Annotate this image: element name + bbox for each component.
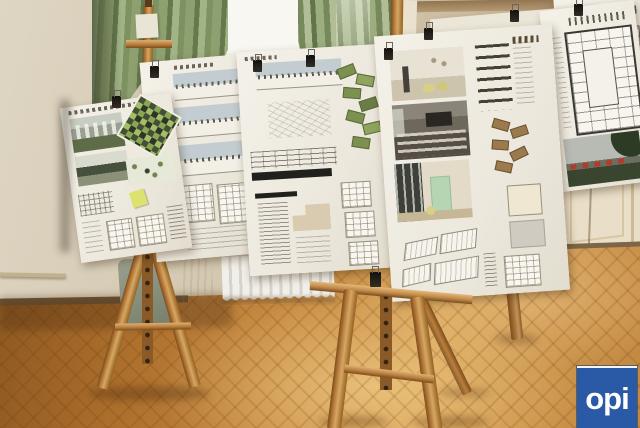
text-block [82,220,105,256]
person-figure [402,66,410,92]
floor-plan [136,213,168,247]
program-block [358,96,378,112]
interior-render-corridor [394,159,473,222]
easel-front-floor-shadow [412,416,488,427]
binder-clip [253,60,262,72]
elevation-drawing [173,68,241,101]
interior-render-playroom [389,46,466,101]
red-accents [570,158,626,170]
easel-left-crossbar-top [126,40,172,48]
floor-plan [106,218,136,251]
floor-plan [507,183,543,216]
easel-left-mast-lower [142,252,153,364]
diagram-block [510,124,529,139]
program-block [355,73,375,87]
binder-clip [112,96,121,108]
window-dots [177,116,241,126]
courtyard-floor-plan [564,24,640,136]
blackboard [425,111,451,127]
easel-label-card [135,13,158,38]
window-dots [258,70,340,79]
floor-plan [344,210,376,238]
volume-box [403,236,438,261]
axonometric-plan [125,153,176,185]
easel-front-mast-top [391,0,404,38]
yellow-pouf [422,83,434,93]
diagram-block [491,118,510,132]
program-block [343,87,362,99]
diagram-block [509,145,529,161]
text-block [483,253,497,288]
binder-clip [306,55,315,67]
legend-text [513,42,535,107]
opi-logo-text: opi [585,383,629,414]
exhibition-room-photo: opi [0,0,640,428]
schedule-table [250,147,337,170]
volume-box [439,228,477,254]
presentation-board-front-right [374,24,570,302]
presentation-board-left [60,93,193,263]
sketch-drawing [267,99,331,139]
facade-stripes [75,120,118,139]
axonometric-volumes [398,227,490,295]
text-block [186,224,248,253]
program-block [351,136,370,150]
wall-art-dots [428,54,454,69]
elevation-grid-drawing [78,190,115,217]
schedule-bar [252,168,332,181]
text-block [296,235,332,263]
elevation-drawing [175,140,247,177]
radiator-shadow [222,297,336,303]
binder-clip [574,4,583,16]
legend-lines [475,41,537,111]
poster-title-row [174,62,214,69]
elevation-drawing [174,102,244,139]
floor-plan [504,254,542,288]
binder-clip [150,66,159,78]
presentation-board-center [236,44,393,276]
window-dots [178,154,244,164]
diagram-block [494,160,513,173]
grey-panel [509,219,546,248]
stepped-plan [292,203,332,231]
schedule-bar [255,191,297,199]
easel-left-knob [145,0,152,7]
sticky-note [129,189,148,209]
floor-plan [340,181,372,209]
binder-clip [510,10,519,22]
interior-render-classroom [392,100,471,160]
volume-box [402,263,431,288]
easel-left-crossbar-lower [115,322,191,330]
paneling-molding-inner [570,183,624,244]
courtyard [582,47,619,108]
floor-plan [348,240,379,266]
text-block [166,204,187,240]
binder-clip [384,48,393,60]
photomontage [563,130,640,187]
binder-clip-on-rail [370,272,381,287]
text-block [258,202,292,266]
diagram-block [491,139,509,150]
board-edge-shadow [60,100,70,252]
yellow-pouf [437,82,448,92]
building-render [69,112,125,153]
tables-rows [397,129,468,158]
opi-watermark-logo: opi [577,366,637,428]
volume-box [434,255,479,285]
window-dots [176,79,238,88]
elevation-drawing [255,58,342,90]
binder-clip [424,28,433,40]
building-render [75,150,131,187]
